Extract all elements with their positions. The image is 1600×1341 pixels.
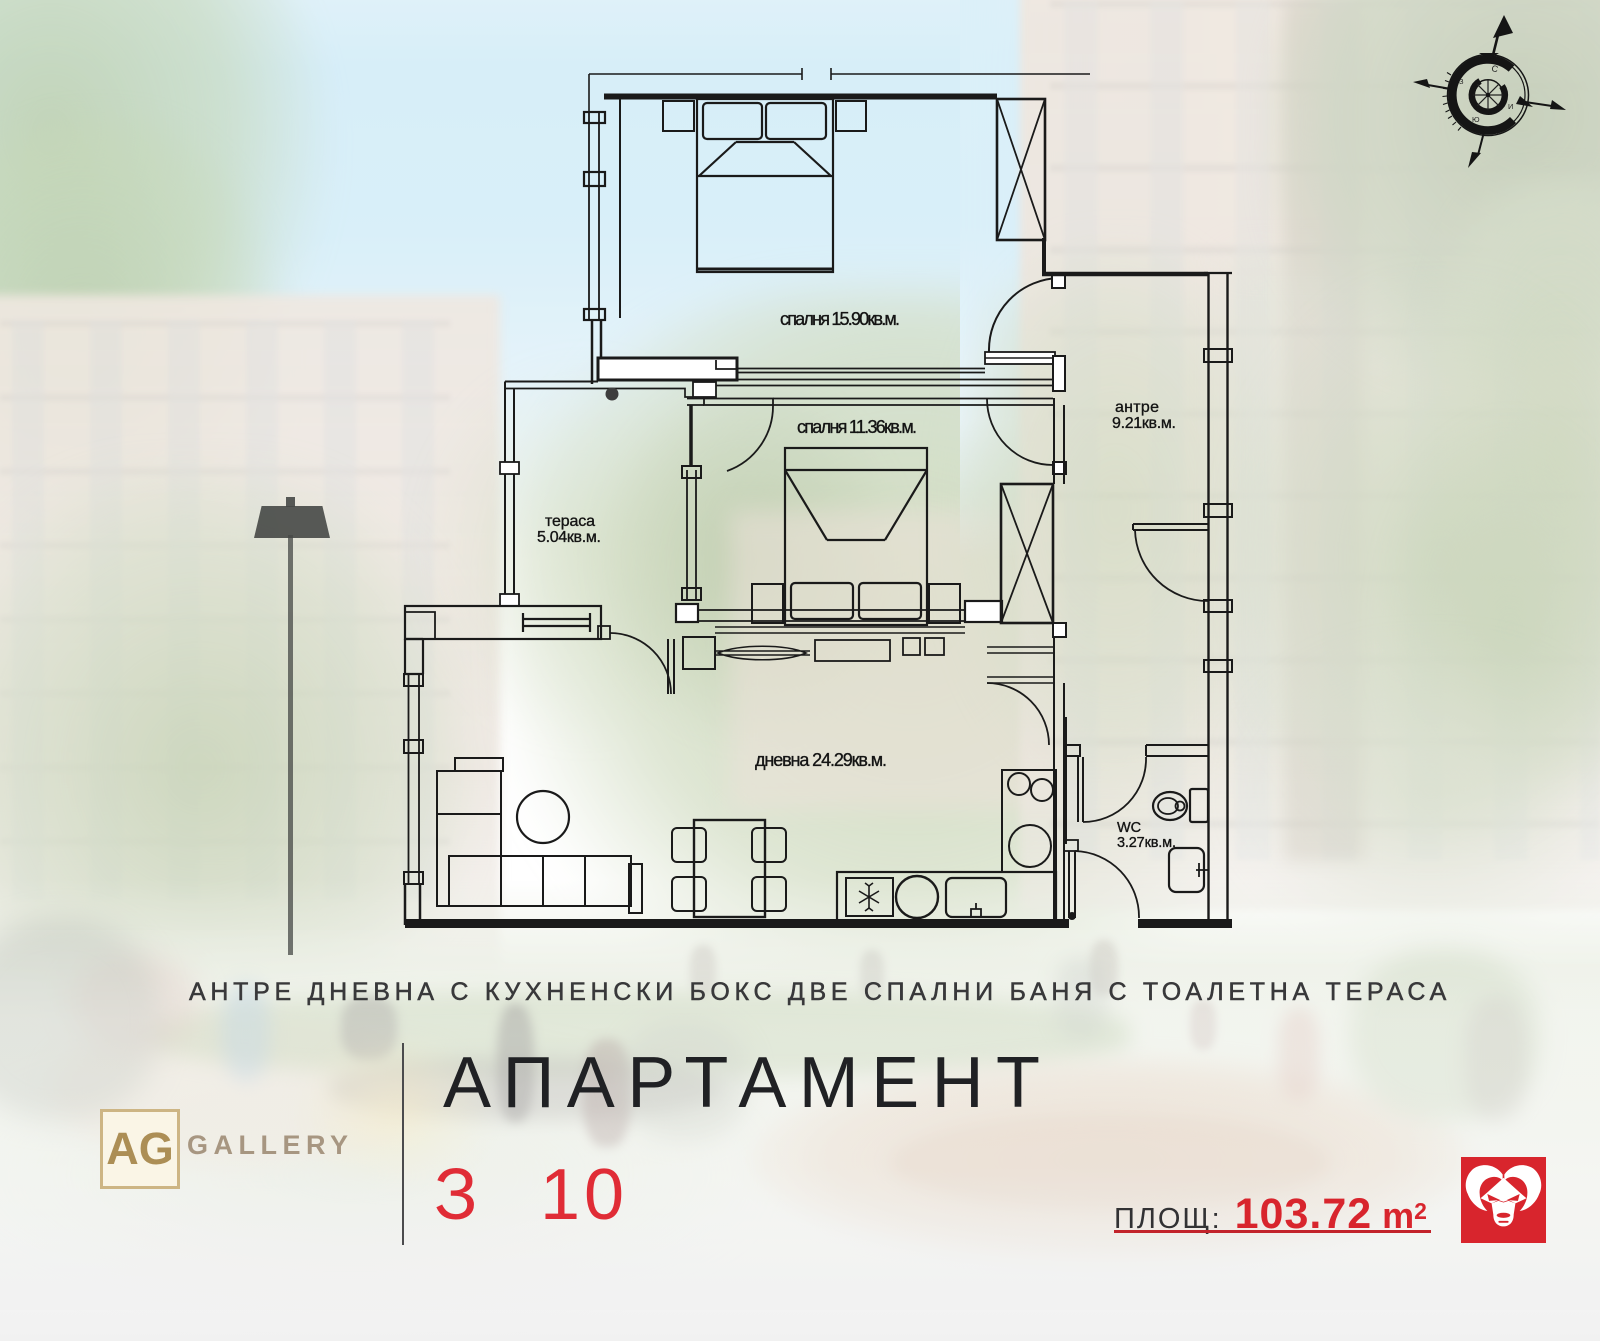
svg-text:И: И <box>1508 102 1513 111</box>
svg-text:дневна 24.29кв.м.: дневна 24.29кв.м. <box>755 750 887 770</box>
svg-text:Ю: Ю <box>1472 115 1480 124</box>
svg-text:5.04кв.м.: 5.04кв.м. <box>537 529 601 546</box>
svg-text:WC: WC <box>1117 820 1141 836</box>
svg-text:С: С <box>1491 63 1500 74</box>
svg-text:антре: антре <box>1115 399 1159 416</box>
svg-text:спалня 15.90кв.м.: спалня 15.90кв.м. <box>780 309 900 329</box>
svg-text:спалня 11.36кв.м.: спалня 11.36кв.м. <box>797 417 917 437</box>
svg-text:тераса: тераса <box>545 513 595 530</box>
svg-text:З: З <box>1459 77 1464 86</box>
svg-text:3.27кв.м.: 3.27кв.м. <box>1117 835 1176 851</box>
svg-text:9.21кв.м.: 9.21кв.м. <box>1112 415 1176 432</box>
